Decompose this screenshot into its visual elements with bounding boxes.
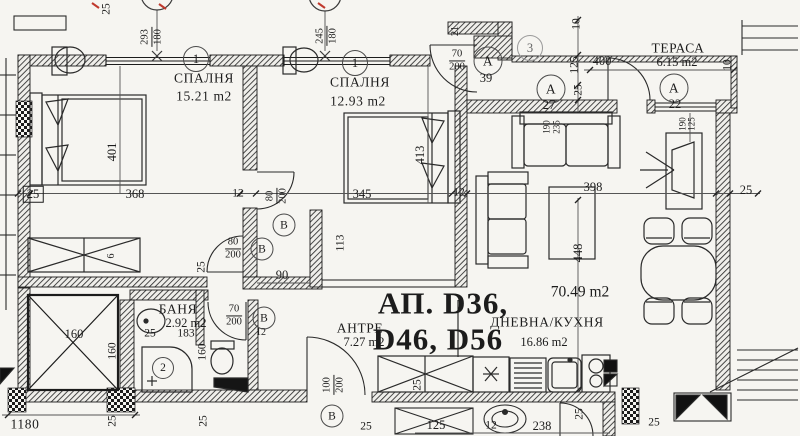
b-marker-1: В [251, 238, 274, 261]
dim-bed1-left: 25 [23, 186, 44, 203]
dim-corridor-90: 90 [276, 269, 289, 282]
room-label-bathroom: БАНЯ [159, 302, 197, 316]
dim-top-25: 25 [101, 3, 113, 15]
section-marker-a22-number: 22 [669, 98, 682, 111]
dim-bottom-1180: 1180 [11, 417, 40, 431]
room-label-bedroom2: СПАЛНЯ [330, 75, 390, 89]
room-number-bedroom2: 1 [342, 50, 368, 76]
dim-living-width: 398 [584, 181, 603, 194]
dim-terrace-10: 10 [722, 59, 734, 71]
dim-bed1-depth: 401 [106, 143, 119, 162]
dim-stub-113: 113 [335, 235, 347, 252]
bedroom1-door-size: 80200 [225, 236, 241, 261]
dim-sofa-235: 235 [553, 120, 562, 134]
apartment-label-line2: D46, D56 [373, 324, 503, 355]
dim-bed1-width: 368 [126, 188, 145, 201]
dim-hall-25: 25 [360, 421, 372, 433]
dim-living-depth: 448 [572, 244, 585, 263]
room-number-living: 3 [517, 35, 543, 61]
room-label-terrace: ТЕРАСА [651, 41, 704, 55]
room-number-bathroom: 2 [152, 357, 174, 379]
room-number-bedroom1: 1 [183, 46, 209, 72]
grid-markers [141, 0, 341, 61]
elevator-shaft [28, 295, 118, 390]
dim-kitchen-25: 25 [412, 379, 424, 391]
dim-bed2-width: 345 [353, 188, 372, 201]
dim-bath-25: 25 [144, 328, 156, 340]
dim-shaft-160b: 160 [107, 342, 119, 359]
dim-bed1-right: 12 [232, 188, 244, 200]
floor-plan: 1 СПАЛНЯ 15.21 m2 1 СПАЛНЯ 12.93 m2 3 ДН… [0, 0, 800, 436]
dim-wc-12: 12 [256, 328, 266, 338]
window1-size: 293180 [139, 27, 164, 47]
dim-bath-183: 183 [177, 328, 194, 340]
dim-shaft-160: 160 [65, 328, 84, 341]
dim-low-12: 12 [485, 420, 497, 432]
dim-top-21: 21 [451, 26, 461, 36]
dim-bottom-25b: 25 [198, 415, 210, 427]
apartment-door-size: 100200 [321, 375, 346, 395]
dim-sofa-190: 190 [543, 120, 552, 134]
red-scan-marks [92, 3, 325, 9]
wc-door-size: 70200 [226, 303, 242, 328]
dim-low-25: 25 [574, 408, 586, 420]
b-marker-2: В [273, 214, 296, 237]
room-area-bedroom2: 12.93 m2 [330, 94, 386, 108]
entry-door-size: 70200 [449, 48, 465, 73]
dim-right-400: 400 [593, 55, 612, 68]
dim-right-125: 125 [569, 56, 581, 73]
dim-bed2-right: 12 [453, 187, 465, 199]
apartment-label-line1: АП. D36, [378, 288, 508, 319]
dim-bed2-depth: 413 [414, 146, 427, 165]
dim-living-right-25: 25 [740, 184, 753, 197]
dim-tdoor-125: 125 [688, 117, 697, 131]
room-label-bedroom1: СПАЛНЯ [174, 71, 234, 85]
dim-low-125: 125 [427, 419, 446, 432]
total-area-label: 70.49 m2 [551, 284, 610, 300]
room-area-bedroom1: 15.21 m2 [176, 89, 232, 103]
dim-wc-160: 160 [197, 343, 209, 360]
bedroom2-door-size: 80200 [264, 188, 289, 204]
b-marker-4: В [321, 405, 344, 428]
dim-low-238: 238 [533, 420, 552, 433]
dim-right-25: 25 [573, 84, 585, 96]
room-area-terrace: 6.15 m2 [657, 56, 698, 69]
dim-corridor-25: 25 [196, 261, 208, 273]
section-marker-a39-number: 39 [480, 72, 493, 85]
dim-wardrobe: 6 [107, 254, 117, 259]
dim-bottom-25a: 25 [107, 415, 119, 427]
window2-size: 245180 [314, 26, 339, 46]
section-marker-a27-number: 27 [543, 99, 556, 112]
dim-right-10: 10 [571, 18, 583, 30]
dim-low-25b: 25 [648, 417, 660, 429]
room-area-living: 16.86 m2 [520, 336, 567, 349]
